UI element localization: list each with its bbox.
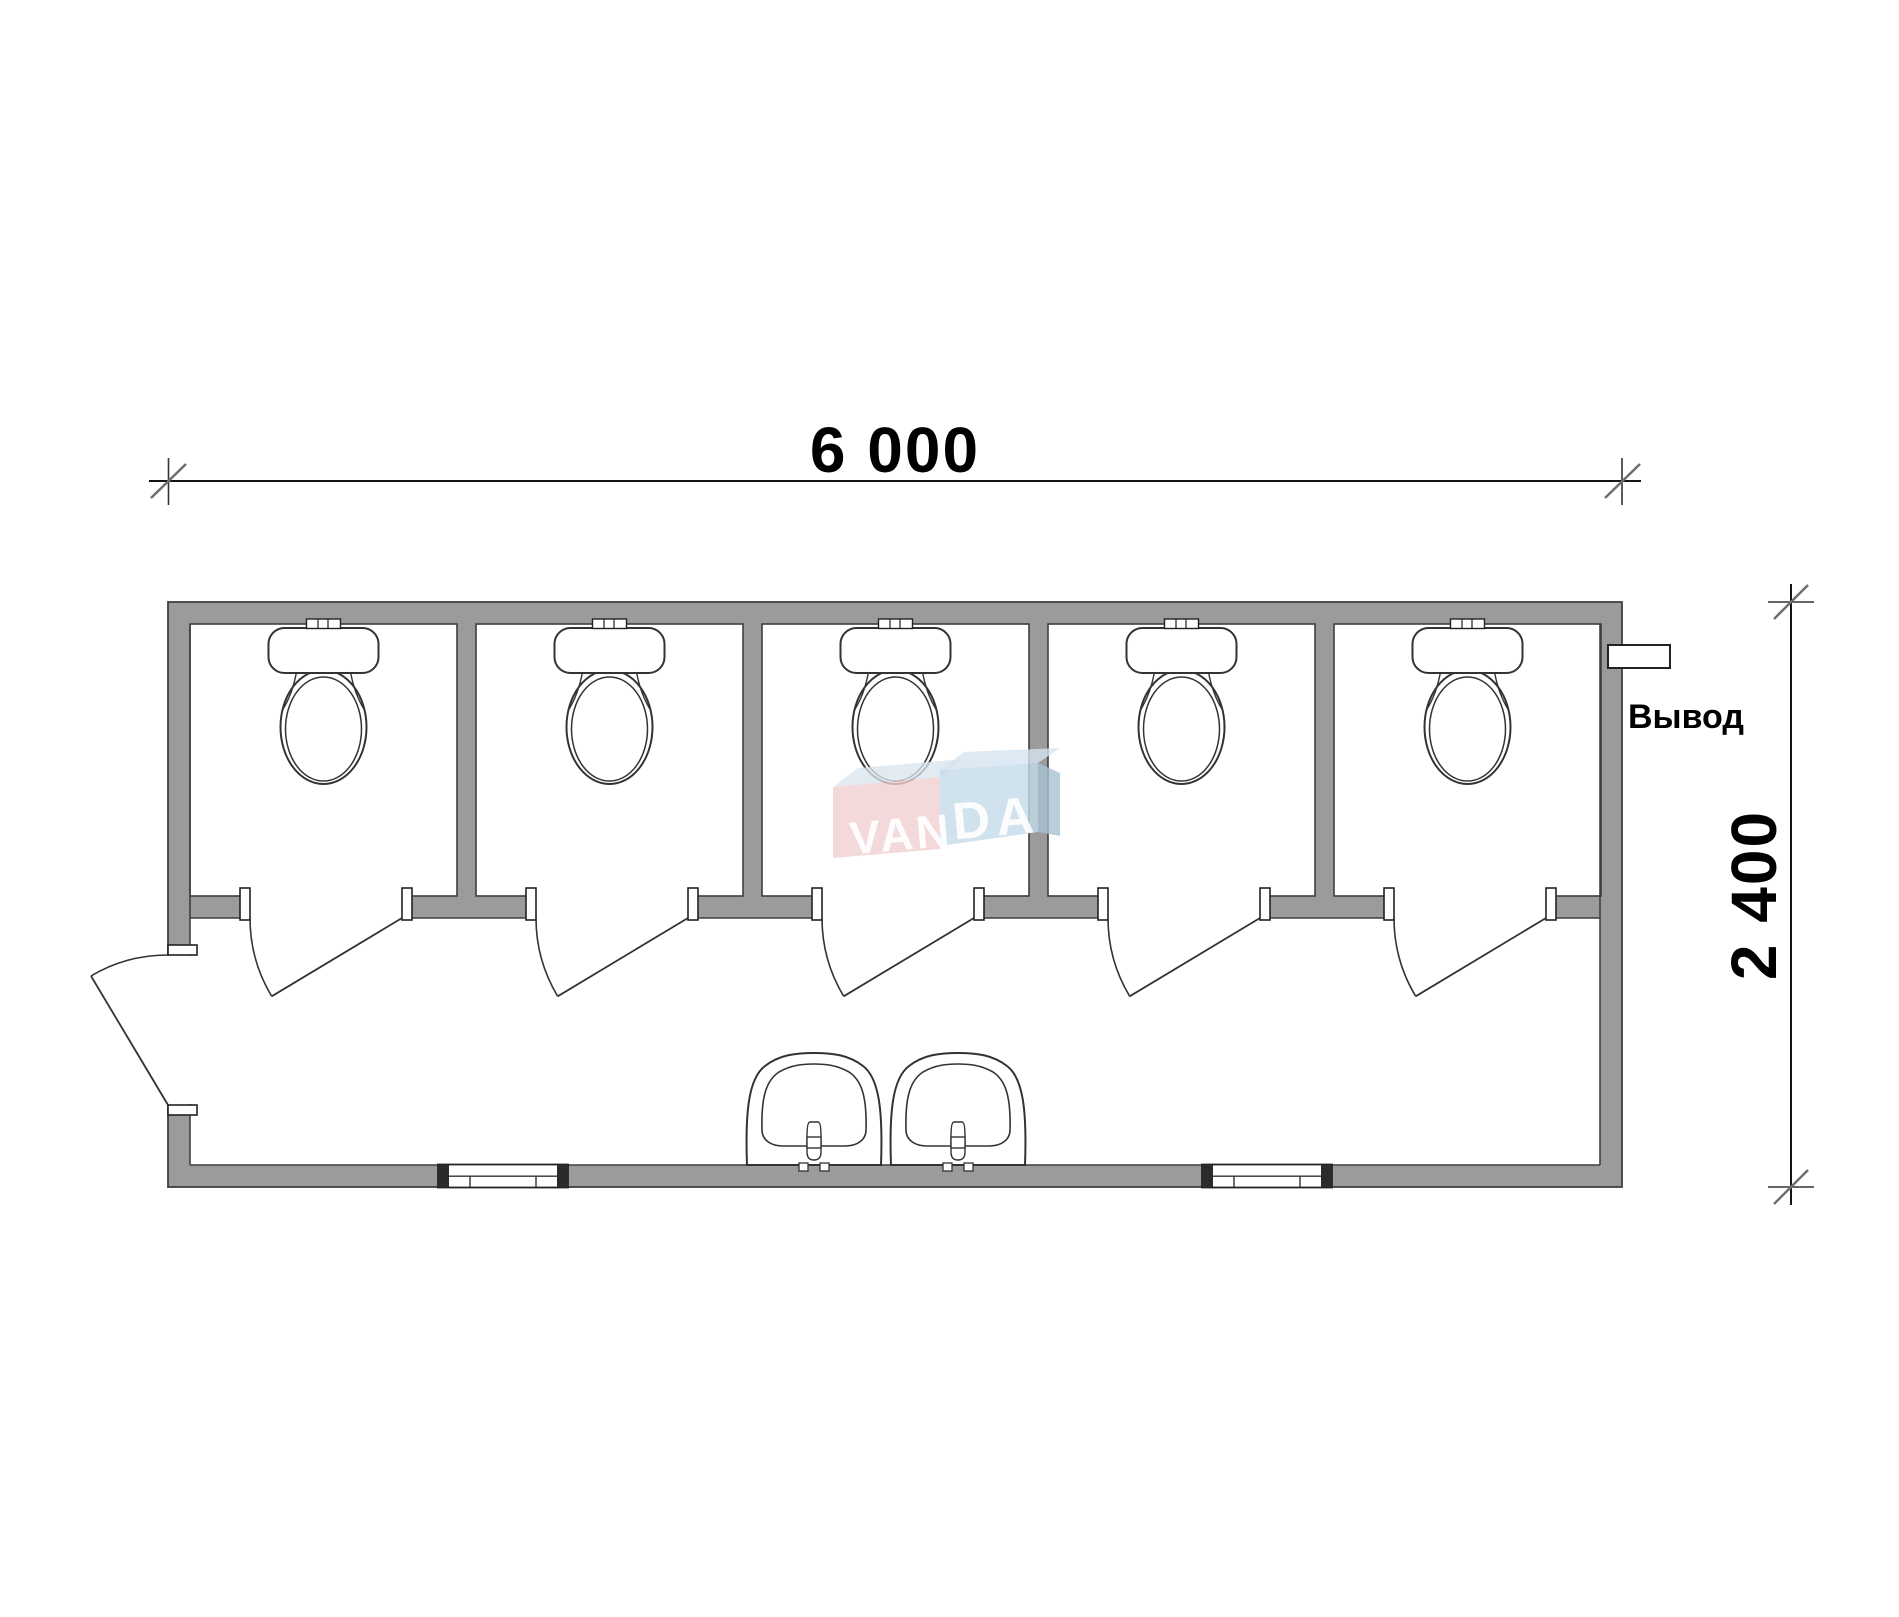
door-jamb: [526, 888, 536, 920]
door-jamb: [402, 888, 412, 920]
entry-door-sill: [168, 1105, 197, 1115]
floor-plan-page: Вывод 6 000 2 400 VAN DA: [0, 0, 1899, 1617]
flush-panel: [1451, 619, 1485, 629]
door-jamb: [1546, 888, 1556, 920]
window: [1202, 1165, 1332, 1188]
stall-door: [1394, 918, 1546, 996]
stall-door: [1108, 918, 1260, 996]
door-jamb: [974, 888, 984, 920]
door-jamb: [1384, 888, 1394, 920]
dimension-right: 2 400: [1718, 584, 1814, 1205]
height-dimension-label: 2 400: [1718, 810, 1790, 980]
toilet: [269, 619, 379, 784]
width-dimension-label: 6 000: [810, 414, 980, 486]
watermark-text-left: VAN: [847, 804, 954, 865]
sink: [747, 1053, 882, 1171]
door-jamb: [812, 888, 822, 920]
toilet-tank: [1413, 628, 1523, 673]
door-jamb: [1098, 888, 1108, 920]
watermark-blue-side-face: [1038, 763, 1060, 836]
flush-panel: [593, 619, 627, 629]
toilet-tank: [555, 628, 665, 673]
toilet-tank: [1127, 628, 1237, 673]
door-jamb: [240, 888, 250, 920]
toilet: [1127, 619, 1237, 784]
window: [438, 1165, 568, 1188]
outlet-label: Вывод: [1628, 698, 1744, 736]
door-jamb: [688, 888, 698, 920]
toilet: [1413, 619, 1523, 784]
stall-door: [822, 918, 974, 996]
outlet-stub: [1608, 645, 1670, 668]
dimension-top: 6 000: [149, 414, 1641, 505]
door-jamb: [1260, 888, 1270, 920]
toilet-tank: [841, 628, 951, 673]
entry-door: [91, 955, 168, 1105]
toilet-tank: [269, 628, 379, 673]
stall-door: [536, 918, 688, 996]
entry-door-sill: [168, 945, 197, 955]
watermark-text-right: DA: [950, 786, 1042, 851]
flush-panel: [1165, 619, 1199, 629]
floor-plan-drawing: Вывод 6 000 2 400 VAN DA: [0, 0, 1899, 1617]
toilet: [841, 619, 951, 784]
sink: [891, 1053, 1026, 1171]
stall-door: [250, 918, 402, 996]
flush-panel: [307, 619, 341, 629]
toilet: [555, 619, 665, 784]
flush-panel: [879, 619, 913, 629]
